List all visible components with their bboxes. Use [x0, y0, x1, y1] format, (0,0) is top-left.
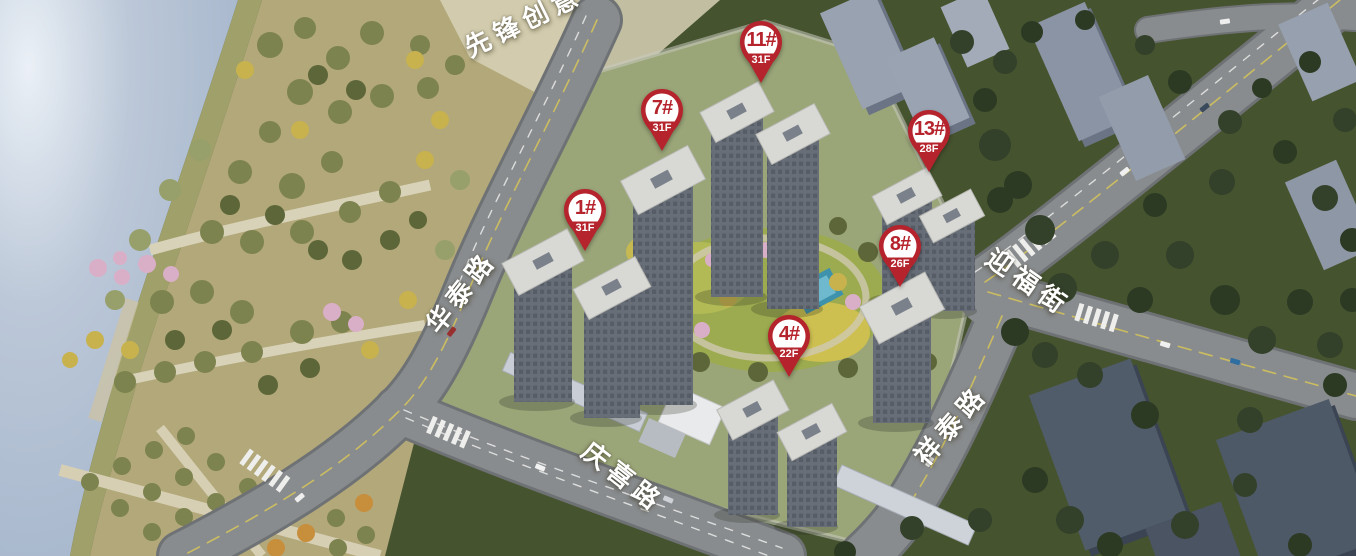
- building-pin-11[interactable]: 11# 31F: [735, 19, 787, 89]
- pin-building-number: 13#: [903, 119, 955, 139]
- building-pin-8[interactable]: 8# 26F: [874, 223, 926, 293]
- pin-building-number: 8#: [874, 234, 926, 254]
- pin-floor-count: 31F: [636, 122, 688, 134]
- building-pin-13[interactable]: 13# 28F: [903, 108, 955, 178]
- pin-floor-count: 22F: [763, 348, 815, 360]
- pin-floor-count: 31F: [559, 222, 611, 234]
- masterplan-canvas: 先锋创意 华泰路 迎福街 祥泰路 庆喜路 11# 31F 7# 31F 13# …: [0, 0, 1356, 556]
- pin-building-number: 11#: [735, 30, 787, 50]
- building-pin-4[interactable]: 4# 22F: [763, 313, 815, 383]
- pin-floor-count: 28F: [903, 143, 955, 155]
- pin-floor-count: 26F: [874, 258, 926, 270]
- pin-building-number: 7#: [636, 98, 688, 118]
- building-pin-1[interactable]: 1# 31F: [559, 187, 611, 257]
- pin-building-number: 1#: [559, 198, 611, 218]
- pin-floor-count: 31F: [735, 54, 787, 66]
- pin-building-number: 4#: [763, 324, 815, 344]
- building-pin-7[interactable]: 7# 31F: [636, 87, 688, 157]
- aerial-rendering-background: [0, 0, 1356, 556]
